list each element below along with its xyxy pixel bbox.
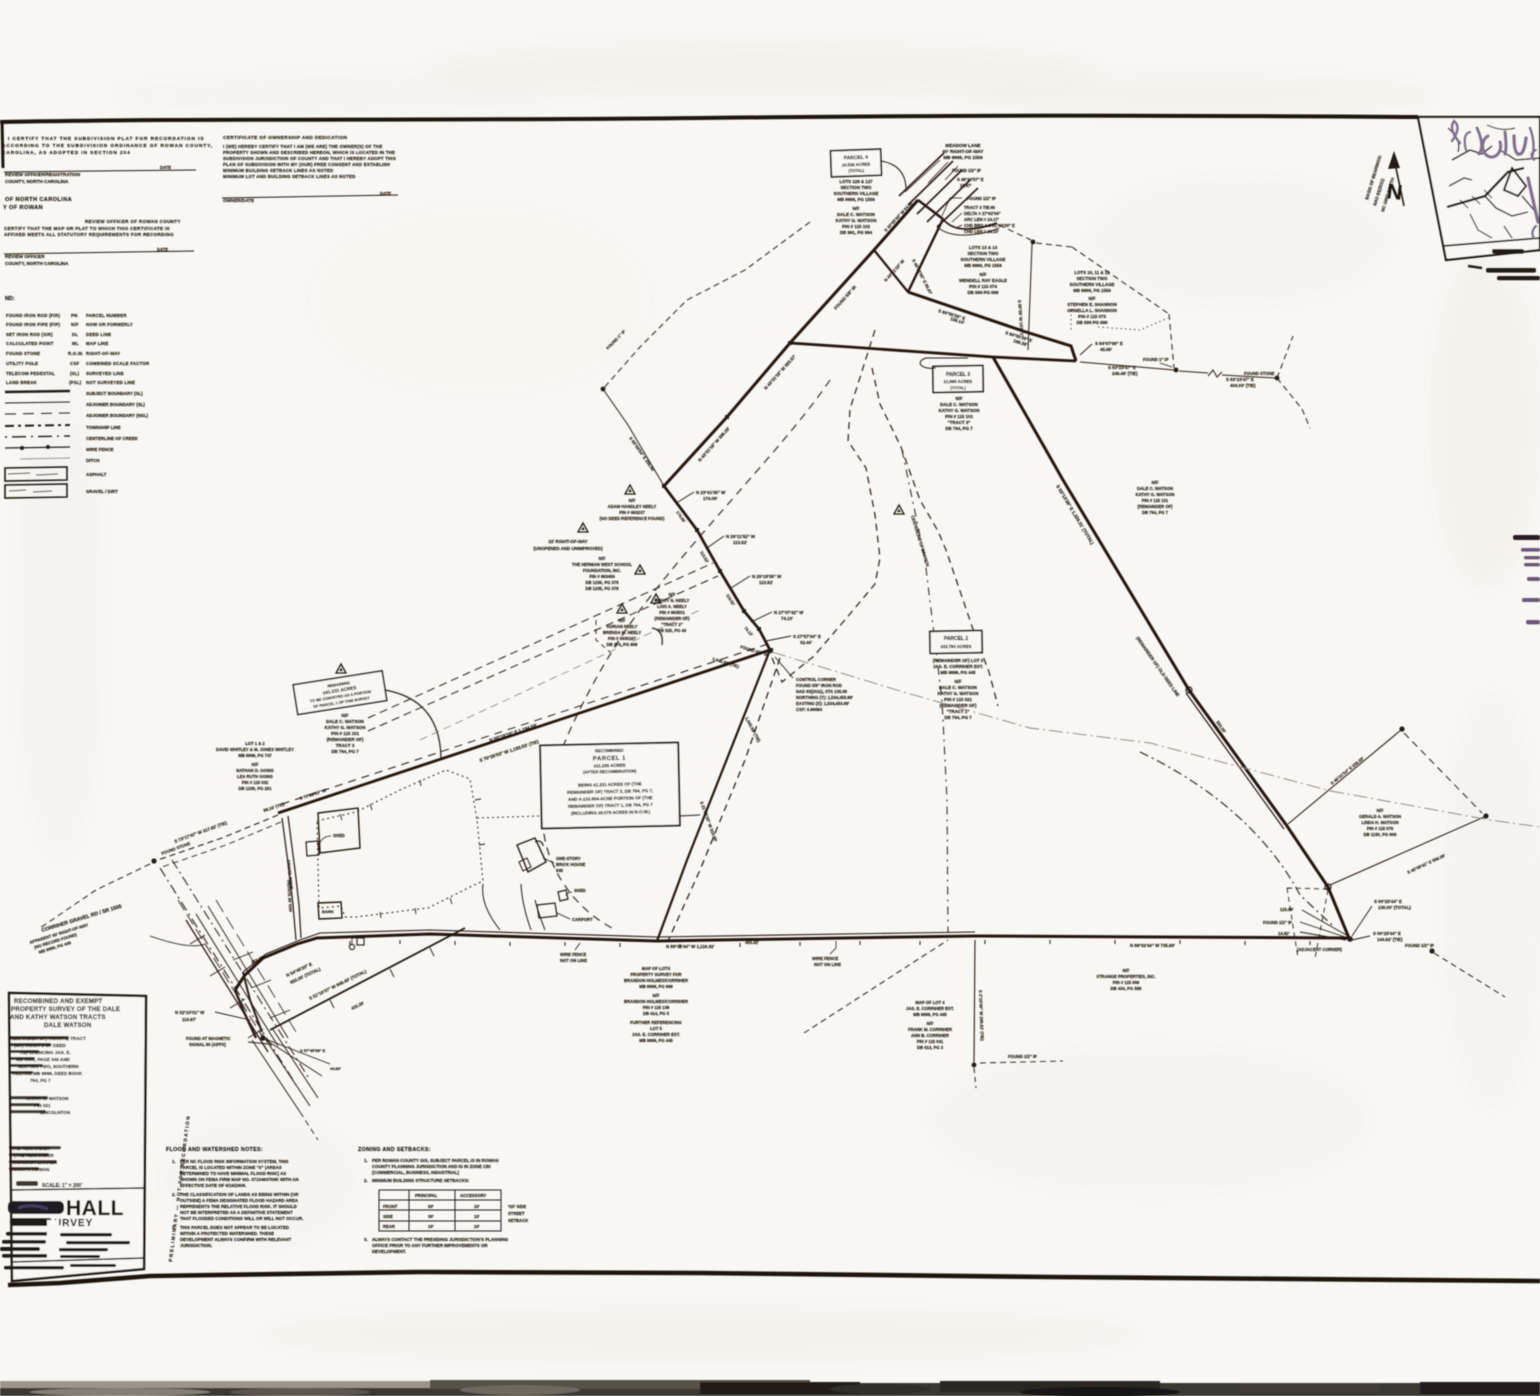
svg-text:N: N: [1386, 180, 1404, 205]
svg-text:FRONT: FRONT: [383, 1204, 398, 1209]
svg-text:LOTS 126 & 127: LOTS 126 & 127: [839, 179, 873, 184]
svg-text:LOTS 10, 11 & 12: LOTS 10, 11 & 12: [1074, 270, 1110, 275]
svg-text:LINDA H. WATSON: LINDA H. WATSON: [1361, 820, 1398, 825]
svg-text:PIN # 663237: PIN # 663237: [619, 510, 645, 515]
svg-text:1.: 1.: [172, 1159, 176, 1164]
svg-text:LAND BREAK: LAND BREAK: [6, 380, 38, 385]
svg-text:SOUTHERN VILLAGE: SOUTHERN VILLAGE: [834, 191, 879, 196]
svg-text:ADJOINER BOUNDARY (SL): ADJOINER BOUNDARY (SL): [86, 402, 145, 407]
svg-text:ACCESSORY: ACCESSORY: [460, 1193, 487, 1198]
svg-text:PIN # 115 074: PIN # 115 074: [969, 284, 997, 289]
svg-text:32.44': 32.44': [800, 640, 812, 645]
svg-text:WENDELL RAY EAGLE: WENDELL RAY EAGLE: [959, 278, 1007, 283]
svg-text:KATHY G. WATSON: KATHY G. WATSON: [1136, 492, 1175, 497]
svg-text:ONE-STORY: ONE-STORY: [556, 856, 581, 861]
svg-text:CENTERLINE OF CREEK: CENTERLINE OF CREEK: [86, 436, 139, 441]
svg-text:FRANK M. CORRIHER: FRANK M. CORRIHER: [908, 1027, 952, 1032]
svg-text:2.: 2.: [172, 1192, 176, 1197]
svg-text:PIN # 115 021: PIN # 115 021: [944, 697, 972, 702]
svg-text:SOUTHERN VILLAGE: SOUTHERN VILLAGE: [1070, 282, 1115, 287]
svg-text:DALE C. WATSON: DALE C. WATSON: [326, 719, 364, 724]
svg-text:PARCEL 4: PARCEL 4: [844, 155, 869, 162]
svg-text:PARCEL 1: PARCEL 1: [593, 756, 626, 763]
svg-text:COUNTY, NORTH CAROLINA: COUNTY, NORTH CAROLINA: [5, 261, 69, 266]
svg-text:249.46' (TIE): 249.46' (TIE): [1112, 371, 1138, 376]
svg-text:PIN # 115 138: PIN # 115 138: [643, 1005, 670, 1010]
svg-text:ADRIAN NEELY: ADRIAN NEELY: [606, 624, 637, 629]
svg-text:ARC LEN = 24.17': ARC LEN = 24.17': [964, 217, 999, 222]
svg-text:3.: 3.: [172, 1225, 176, 1230]
svg-text:(NO DEED REFERENCE FOUND): (NO DEED REFERENCE FOUND): [600, 516, 666, 521]
svg-text:PLAN OF SUBDIVISION WITH MY (O: PLAN OF SUBDIVISION WITH MY (OUR) FREE C…: [223, 162, 390, 167]
svg-text:SUBJECT BOUNDARY (SL): SUBJECT BOUNDARY (SL): [86, 391, 143, 396]
svg-text:WIRE FENCE: WIRE FENCE: [560, 952, 586, 957]
svg-text:"TRACT 3": "TRACT 3": [948, 420, 971, 425]
svg-text:CONTROL CORNER: CONTROL CORNER: [796, 677, 836, 682]
svg-text:N/F: N/F: [1123, 968, 1130, 973]
svg-text:COMBINED SCALE FACTOR: COMBINED SCALE FACTOR: [86, 361, 150, 366]
svg-text:LEA RUTH GOINS: LEA RUTH GOINS: [237, 774, 273, 779]
svg-text:SECTION TWO: SECTION TWO: [841, 185, 873, 190]
svg-text:STREET: STREET: [508, 1211, 525, 1216]
svg-text:EASTING (X): 1,534,453.98': EASTING (X): 1,534,453.98': [796, 701, 849, 706]
svg-text:SIDE: SIDE: [383, 1214, 393, 1219]
svg-text:45.69': 45.69': [1100, 347, 1112, 352]
svg-text:RECOMBINED: RECOMBINED: [595, 748, 624, 754]
svg-text:COUNTY, NORTH CAROLINA: COUNTY, NORTH CAROLINA: [5, 179, 69, 184]
svg-text:N/F: N/F: [927, 1021, 934, 1026]
svg-text:DAVID WHITLEY & M. JONES WHITL: DAVID WHITLEY & M. JONES WHITLEY: [216, 747, 294, 752]
svg-text:130.00' (TOTAL): 130.00' (TOTAL): [1378, 905, 1411, 910]
svg-text:SHOWN ON FEMA FIRM MAP NO. 371: SHOWN ON FEMA FIRM MAP NO. 3710463700K W…: [180, 1177, 299, 1182]
svg-text:DB 1236, PG 291: DB 1236, PG 291: [238, 786, 272, 791]
svg-text:NOT SURVEYED LINE: NOT SURVEYED LINE: [86, 380, 135, 385]
svg-text:ACCORDING TO THE SUBDIVISION O: ACCORDING TO THE SUBDIVISION ORDINANCE O…: [2, 143, 213, 149]
svg-text:14.82': 14.82': [1278, 931, 1289, 936]
svg-text:N/F: N/F: [653, 993, 660, 998]
svg-text:DB 413, PG 3: DB 413, PG 3: [917, 1045, 944, 1050]
svg-text:(SL): (SL): [70, 371, 80, 376]
svg-text:CSF: 0.99984: CSF: 0.99984: [796, 707, 823, 712]
svg-text:KATHY G. WATSON: KATHY G. WATSON: [325, 725, 366, 730]
svg-text:ML: ML: [72, 341, 79, 346]
svg-text:(REMAINDER OF): (REMAINDER OF): [940, 703, 977, 708]
svg-text:JAS. E. CORRIHER EST.: JAS. E. CORRIHER EST.: [906, 1006, 954, 1011]
svg-text:REVIEW OFFICER OF ROWAN COUNTY: REVIEW OFFICER OF ROWAN COUNTY: [85, 219, 181, 224]
svg-text:3.: 3.: [364, 1237, 368, 1242]
svg-text:MINIMUM LOT AND BUILDING SETBA: MINIMUM LOT AND BUILDING SETBACK LINES A…: [223, 174, 356, 179]
svg-text:404.03' (TIE): 404.03' (TIE): [1230, 383, 1256, 388]
svg-text:FOUND 1/2" IP: FOUND 1/2" IP: [1008, 1054, 1037, 1059]
svg-text:FLOOD AND WATERSHED NOTES:: FLOOD AND WATERSHED NOTES:: [166, 1147, 263, 1153]
svg-text:113.52': 113.52': [759, 580, 773, 585]
svg-text:PARCEL 3: PARCEL 3: [946, 372, 970, 378]
svg-text:FOUND 1/2" IP: FOUND 1/2" IP: [967, 196, 996, 201]
svg-text:FOUND AT MAGNETIC: FOUND AT MAGNETIC: [186, 1036, 231, 1041]
svg-text:S 27°57'34" E: S 27°57'34" E: [793, 634, 821, 639]
svg-text:S 63°23'47" E: S 63°23'47" E: [1108, 365, 1136, 370]
svg-text:AND KATHY WATSON TRACTS: AND KATHY WATSON TRACTS: [10, 1014, 106, 1021]
svg-text:SHED: SHED: [333, 833, 345, 838]
svg-text:URVEY: URVEY: [54, 1218, 93, 1229]
svg-text:CAROLINA, AS ADOPTED IN SECTIO: CAROLINA, AS ADOPTED IN SECTION 204: [2, 150, 131, 156]
svg-text:ADJOINER BOUNDARY (NSL): ADJOINER BOUNDARY (NSL): [86, 413, 148, 418]
svg-text:PROPERTY SHOWN AND DESCRIBED H: PROPERTY SHOWN AND DESCRIBED HEREON, WHI…: [223, 150, 395, 155]
svg-text:DEVELOPMENT ALWAYS CONFIRM WIT: DEVELOPMENT ALWAYS CONFIRM WITH RELEVANT: [180, 1237, 292, 1242]
svg-text:N 89°32'44" W 1,116.32': N 89°32'44" W 1,116.32': [666, 944, 714, 949]
svg-text:JAS. E. CORRIHER EST.: JAS. E. CORRIHER EST.: [632, 1032, 680, 1037]
svg-text:N/F: N/F: [341, 713, 348, 718]
svg-text:PIN # 115 073: PIN # 115 073: [1078, 314, 1106, 319]
svg-text:DB 1235, PG 378: DB 1235, PG 378: [585, 586, 619, 591]
svg-text:ADAM HANDLEY NEELY: ADAM HANDLEY NEELY: [608, 504, 657, 509]
svg-text:ND:: ND:: [5, 296, 15, 302]
svg-text:FOUND 1" IP: FOUND 1" IP: [1143, 357, 1169, 362]
svg-text:MB 9999, PG 1556: MB 9999, PG 1556: [964, 263, 1002, 268]
svg-text:BRANDON HOLMES/CORRIHER: BRANDON HOLMES/CORRIHER: [624, 978, 688, 983]
svg-text:REVIEW OFFICER/REGISTRATION: REVIEW OFFICER/REGISTRATION: [5, 172, 81, 177]
svg-text:MB 9999, PG 999: MB 9999, PG 999: [639, 984, 673, 989]
svg-text:DATE: DATE: [160, 165, 171, 170]
svg-text:N 89°32'44" W 735.99': N 89°32'44" W 735.99': [1130, 943, 1175, 948]
svg-text:N/F: N/F: [629, 498, 636, 503]
svg-text:STEPHEN E. SHANNON: STEPHEN E. SHANNON: [1067, 302, 1117, 307]
svg-text:DALE WATSON: DALE WATSON: [44, 1022, 92, 1029]
svg-text:LOTS 13 & 14: LOTS 13 & 14: [969, 245, 998, 250]
svg-text:N/F: N/F: [954, 679, 961, 684]
svg-text:SETBACK: SETBACK: [508, 1218, 528, 1223]
svg-text:PIN # 6635167: PIN # 6635167: [608, 636, 637, 641]
svg-text:HALL: HALL: [66, 1197, 124, 1220]
svg-text:453.42': 453.42': [745, 940, 759, 945]
svg-text:16.67': 16.67': [960, 183, 971, 188]
svg-text:PIN # 115 101: PIN # 115 101: [1142, 498, 1169, 503]
svg-text:22' RIGHT-OF-WAY: 22' RIGHT-OF-WAY: [548, 539, 587, 544]
svg-text:PIN # 663501: PIN # 663501: [659, 610, 685, 615]
svg-text:SIGNAL 60 (APPX): SIGNAL 60 (APPX): [189, 1042, 227, 1047]
svg-text:LOIS A. NEELY: LOIS A. NEELY: [657, 604, 687, 609]
svg-text:WIRE FENCE: WIRE FENCE: [86, 447, 114, 452]
svg-text:SHED: SHED: [574, 888, 586, 893]
svg-text:JURISDICTION.: JURISDICTION.: [180, 1243, 212, 1248]
svg-text:THE HERMAN WEST SCHOOL: THE HERMAN WEST SCHOOL: [572, 562, 633, 567]
svg-text:N/F: N/F: [852, 206, 859, 211]
svg-text:NOT ON LINE: NOT ON LINE: [814, 962, 841, 967]
svg-text:113.52': 113.52': [733, 540, 747, 545]
svg-text:RIGHT-OF-WAY: RIGHT-OF-WAY: [86, 351, 120, 356]
svg-text:DATE: DATE: [157, 247, 168, 252]
svg-text:174.06': 174.06': [703, 496, 717, 501]
svg-text:PER NC FLOOD RISK INFORMATION: PER NC FLOOD RISK INFORMATION SYSTEM, TH…: [180, 1159, 289, 1164]
svg-text:MB 9999, PG 445: MB 9999, PG 445: [913, 1012, 947, 1017]
svg-text:MAP OF LOTS: MAP OF LOTS: [642, 966, 671, 971]
svg-text:(TOTAL): (TOTAL): [950, 385, 966, 390]
svg-text:OWNER/DATE: OWNER/DATE: [223, 198, 254, 203]
svg-text:NOW OR FORMERLY: NOW OR FORMERLY: [86, 322, 133, 327]
svg-text:CHD BRG = S 81°04'30" E: CHD BRG = S 81°04'30" E: [964, 223, 1015, 228]
svg-text:FOUND IRON ROD (FIR): FOUND IRON ROD (FIR): [6, 313, 60, 318]
svg-text:115.09': 115.09': [1280, 907, 1294, 912]
svg-text:OFFICE PRIOR TO ANY FURTHER IM: OFFICE PRIOR TO ANY FURTHER IMPROVEMENTS…: [372, 1243, 488, 1248]
svg-text:NAD 83(2011), STA 135.08: NAD 83(2011), STA 135.08: [796, 689, 848, 694]
svg-text:"TRACT 1": "TRACT 1": [947, 709, 970, 714]
svg-text:"TRACT 2": "TRACT 2": [661, 622, 683, 627]
svg-text:GRAVEL / DIRT: GRAVEL / DIRT: [86, 489, 118, 494]
svg-text:FOUND 5/8" IRON ROD: FOUND 5/8" IRON ROD: [796, 683, 842, 688]
svg-text:Y OF ROWAN: Y OF ROWAN: [3, 205, 43, 211]
svg-text:110.67': 110.67': [182, 1017, 196, 1022]
svg-text:THE CLASSIFICATION OF LANDS AS: THE CLASSIFICATION OF LANDS AS BEING WIT…: [180, 1192, 299, 1197]
svg-text:TRACT 3: TRACT 3: [336, 743, 355, 748]
svg-text:S 84°07'09" E: S 84°07'09" E: [1095, 341, 1123, 346]
svg-text:DITCH: DITCH: [86, 458, 99, 463]
svg-text:FURTHER REFERENCING: FURTHER REFERENCING: [630, 1020, 682, 1025]
svg-text:R.O.W.: R.O.W.: [68, 351, 83, 356]
svg-text:PARCEL IS LOCATED WITHIN ZONE: PARCEL IS LOCATED WITHIN ZONE "X" (AREAS: [180, 1165, 282, 1170]
svg-text:CSF: CSF: [70, 361, 79, 366]
svg-text:KATHY G. WATSON: KATHY G. WATSON: [938, 691, 979, 696]
svg-text:MB 9999, PG 1556: MB 9999, PG 1556: [837, 197, 875, 202]
svg-text:±11.235 ACRES: ±11.235 ACRES: [594, 763, 626, 769]
svg-text:DETERMINED TO HAVE MINIMAL FLO: DETERMINED TO HAVE MINIMAL FLOOD RISK) A…: [180, 1171, 286, 1176]
svg-text:CERTIFY THAT THE MAP OR PLAT T: CERTIFY THAT THE MAP OR PLAT TO WHICH TH…: [4, 226, 170, 231]
svg-text:PIN # 115 076: PIN # 115 076: [1367, 826, 1394, 831]
svg-text:KATHY G. WATSON: KATHY G. WATSON: [836, 218, 877, 223]
svg-text:EFFECTIVE DATE OF 6/16/2008.: EFFECTIVE DATE OF 6/16/2008.: [180, 1183, 246, 1188]
svg-text:JAS. E. CORRIHER EST.: JAS. E. CORRIHER EST.: [933, 664, 983, 669]
svg-text:ZONING AND SETBACKS:: ZONING AND SETBACKS:: [358, 1147, 431, 1153]
svg-text:DALE C. WATSON: DALE C. WATSON: [1137, 486, 1173, 491]
svg-text:N/F: N/F: [955, 396, 962, 401]
svg-text:FOUND STONE: FOUND STONE: [6, 351, 40, 356]
svg-text:S 63°23'47" E: S 63°23'47" E: [1226, 377, 1254, 382]
svg-text:N 26°11'52" W: N 26°11'52" W: [726, 534, 756, 539]
svg-text:NORTHING (Y): 1,534,453.96': NORTHING (Y): 1,534,453.96': [796, 695, 853, 700]
svg-text:DB 434, PG 588: DB 434, PG 588: [1111, 986, 1142, 991]
svg-text:PN: PN: [71, 313, 78, 318]
svg-text:DB 764, PG 7: DB 764, PG 7: [944, 715, 972, 720]
svg-text:MB 9999, PG 445: MB 9999, PG 445: [639, 1038, 673, 1043]
svg-text:FOUNDATION, INC.: FOUNDATION, INC.: [583, 568, 621, 573]
svg-text:SET IRON ROD (SIR): SET IRON ROD (SIR): [6, 332, 53, 337]
svg-text:±32.794 ACRES: ±32.794 ACRES: [941, 644, 972, 649]
svg-text:PIN # 115 041: PIN # 115 041: [917, 1039, 944, 1044]
svg-text:CALCULATED POINT: CALCULATED POINT: [6, 341, 54, 346]
svg-text:50': 50': [428, 1204, 434, 1209]
svg-text:PIN # 115 101: PIN # 115 101: [331, 731, 359, 736]
svg-text:N/F: N/F: [71, 322, 79, 327]
svg-text:DB 764, PG 7: DB 764, PG 7: [945, 426, 973, 431]
svg-text:MAP OF LOT 4: MAP OF LOT 4: [915, 1000, 945, 1005]
svg-text:N 23°41'35" W: N 23°41'35" W: [696, 490, 726, 495]
svg-text:935: 935: [556, 868, 564, 873]
svg-text:44.89': 44.89': [330, 1066, 341, 1071]
svg-text:S 48°20'57" E: S 48°20'57" E: [957, 177, 984, 182]
svg-text:FOUND 1/2" IP: FOUND 1/2" IP: [1405, 943, 1434, 948]
svg-text:PIN # 115 032: PIN # 115 032: [242, 780, 269, 785]
svg-text:HENRY N. NEELY: HENRY N. NEELY: [655, 598, 690, 603]
svg-text:GERALD A. WATSON: GERALD A. WATSON: [1359, 814, 1401, 819]
svg-text:N/F: N/F: [1377, 808, 1384, 813]
svg-text:REAR: REAR: [383, 1224, 395, 1229]
svg-text:N/F: N/F: [1088, 296, 1095, 301]
svg-text:TELECOM PEDESTAL: TELECOM PEDESTAL: [6, 371, 55, 376]
svg-text:PER ROWAN COUNTY GIS, SUBJECT: PER ROWAN COUNTY GIS, SUBJECT PARCEL IS …: [372, 1158, 498, 1163]
svg-text:UTILITY POLE: UTILITY POLE: [6, 361, 38, 366]
svg-text:(ADJACENT CORNER): (ADJACENT CORNER): [1297, 947, 1343, 952]
svg-text:OUTSIDE) A FEMA DESIGNATED FLO: OUTSIDE) A FEMA DESIGNATED FLOOD HAZARD …: [180, 1198, 299, 1203]
svg-text:SOUTHERN VILLAGE: SOUTHERN VILLAGE: [961, 257, 1006, 262]
svg-text:COUNTY PLANNING JURISDICTION A: COUNTY PLANNING JURISDICTION AND IS IN Z…: [372, 1164, 491, 1169]
svg-text:PROPERTY SURVEY OF THE DALE: PROPERTY SURVEY OF THE DALE: [11, 1006, 120, 1013]
svg-text:FOUND 1/2" IP: FOUND 1/2" IP: [1263, 920, 1292, 925]
svg-text:PROPERTY SURVEY FOR: PROPERTY SURVEY FOR: [630, 972, 681, 977]
svg-text:MB 9999, PG 747: MB 9999, PG 747: [238, 753, 272, 758]
svg-text:DEVELOPMENT.: DEVELOPMENT.: [372, 1249, 406, 1254]
svg-text:DEED LINE: DEED LINE: [86, 332, 111, 337]
svg-text:DL: DL: [72, 332, 78, 337]
svg-text:I (WE) HEREBY CERTIFY THAT I A: I (WE) HEREBY CERTIFY THAT I AM (WE ARE)…: [223, 144, 383, 149]
svg-text:MAP LINE: MAP LINE: [86, 341, 109, 346]
svg-text:N 25°18'35" W: N 25°18'35" W: [752, 574, 782, 579]
svg-text:±1.899 ACRES: ±1.899 ACRES: [944, 379, 973, 384]
svg-text:THAT FLOODED CONDITIONS WILL O: THAT FLOODED CONDITIONS WILL OR WILL NOT…: [180, 1216, 303, 1221]
svg-text:N/F: N/F: [252, 762, 259, 767]
svg-text:N 27°37'42" W: N 27°37'42" W: [774, 610, 804, 615]
svg-text:MB 9999, PG 1556: MB 9999, PG 1556: [943, 155, 983, 160]
svg-text:SUBDIVISION JURISDICTION OF CO: SUBDIVISION JURISDICTION OF COUNTY AND T…: [223, 156, 396, 161]
svg-text:(UNOPENED AND UNIMPROVED): (UNOPENED AND UNIMPROVED): [533, 546, 603, 551]
svg-text:N/F: N/F: [979, 272, 986, 277]
svg-text:DELTA = 17°02'04": DELTA = 17°02'04": [964, 211, 1001, 216]
svg-text:DB 991, PG 994: DB 991, PG 994: [840, 230, 873, 235]
svg-text:LOT 5: LOT 5: [650, 1026, 663, 1031]
svg-text:MEADOW LANE: MEADOW LANE: [945, 143, 980, 148]
svg-text:10': 10': [474, 1214, 480, 1219]
svg-text:SURVEYED LINE: SURVEYED LINE: [86, 371, 124, 376]
svg-text:S 00°20'44" E: S 00°20'44" E: [1373, 931, 1401, 936]
svg-text:(REMAINDER OF): (REMAINDER OF): [1137, 504, 1173, 509]
svg-text:DALE C. WATSON: DALE C. WATSON: [837, 212, 875, 217]
svg-text:±0.536 ACRES: ±0.536 ACRES: [842, 161, 871, 167]
svg-text:PIN # 115 066: PIN # 115 066: [1113, 980, 1140, 985]
svg-text:BRICK HOUSE: BRICK HOUSE: [556, 862, 586, 867]
svg-text:REPRESENTS THE RELATIVE FLOOD: REPRESENTS THE RELATIVE FLOOD RISK. IT S…: [180, 1204, 297, 1209]
svg-text:PARCEL 2: PARCEL 2: [944, 636, 968, 642]
svg-text:CERTIFICATE OF OWNERSHIP AND D: CERTIFICATE OF OWNERSHIP AND DEDICATION: [223, 135, 347, 141]
svg-text:THIS PARCEL DOES NOT APPEAR TO: THIS PARCEL DOES NOT APPEAR TO BE LOCATE…: [180, 1225, 289, 1230]
svg-text:DB 374, PG 808: DB 374, PG 808: [607, 642, 638, 647]
svg-text:CARPORT: CARPORT: [572, 917, 593, 922]
svg-text:30': 30': [428, 1214, 434, 1219]
svg-text:PIN # 663456: PIN # 663456: [589, 574, 615, 579]
svg-text:LOT 1 & 2: LOT 1 & 2: [245, 741, 265, 746]
svg-text:PIN # 115 101: PIN # 115 101: [945, 414, 973, 419]
svg-text:NATHAN D. GOINS: NATHAN D. GOINS: [236, 768, 274, 773]
svg-text:SECTION TWO: SECTION TWO: [968, 251, 1000, 256]
svg-text:144.92' (TIE): 144.92' (TIE): [1377, 937, 1403, 942]
svg-text:OF NORTH CAROLINA: OF NORTH CAROLINA: [5, 197, 72, 203]
svg-text:10': 10': [474, 1224, 480, 1229]
svg-text:KATHY G. WATSON: KATHY G. WATSON: [939, 408, 980, 413]
svg-text:WITHIN A PROTECTED WATERSHED.: WITHIN A PROTECTED WATERSHED. THESE: [180, 1231, 274, 1236]
svg-text:74.13': 74.13': [781, 616, 793, 621]
svg-text:N 32°10'01" W: N 32°10'01" W: [175, 1010, 205, 1015]
svg-text:DB 1235, PG 375: DB 1235, PG 375: [585, 580, 619, 585]
svg-text:(PSL): (PSL): [69, 380, 82, 385]
svg-text:DB 325, PG 40: DB 325, PG 40: [658, 628, 687, 633]
svg-text:(COMMERCIAL, BUSINESS, INDUSTR: (COMMERCIAL, BUSINESS, INDUSTRIAL): [372, 1170, 460, 1175]
svg-text:(REMAINDER OF) LOT 3: (REMAINDER OF) LOT 3: [933, 658, 984, 663]
svg-text:(REMAINDER OF): (REMAINDER OF): [654, 616, 690, 621]
svg-text:PRINCIPAL: PRINCIPAL: [415, 1193, 438, 1198]
svg-text:DB 1150, PG 909: DB 1150, PG 909: [1364, 832, 1397, 837]
svg-text:S 00°20'44" E: S 00°20'44" E: [1374, 899, 1402, 904]
svg-text:NOT ON LINE: NOT ON LINE: [560, 958, 587, 963]
svg-text:FOUND STONE: FOUND STONE: [1244, 371, 1275, 376]
svg-text:STRANGE PROPERTIES, INC.: STRANGE PROPERTIES, INC.: [1096, 974, 1155, 979]
svg-text:1.: 1.: [364, 1158, 368, 1163]
svg-text:FOUND 1/2" IP: FOUND 1/2" IP: [952, 168, 981, 173]
svg-text:ASPHALT: ASPHALT: [86, 472, 107, 477]
svg-text:MINIMUM BUILDING STRUCTURE SET: MINIMUM BUILDING STRUCTURE SETBACKS:: [372, 1178, 470, 1183]
svg-text:SECTION TWO: SECTION TWO: [1077, 276, 1109, 281]
svg-text:ALWAYS CONTACT THE PRESIDING J: ALWAYS CONTACT THE PRESIDING JURISDICTIO…: [372, 1237, 509, 1242]
svg-text:NOT BE INTERPRETED AS A DEFINI: NOT BE INTERPRETED AS A DEFINITIVE STATE…: [180, 1210, 293, 1215]
svg-text:(TOTAL): (TOTAL): [848, 168, 864, 174]
svg-text:S 57°45'58" E: S 57°45'58" E: [300, 1048, 326, 1053]
svg-text:BARN: BARN: [322, 909, 334, 914]
svg-text:MB 9999, PG 1556: MB 9999, PG 1556: [1073, 288, 1111, 293]
svg-text:REVIEW OFFICER: REVIEW OFFICER: [5, 254, 45, 259]
svg-text:10': 10': [428, 1224, 434, 1229]
svg-text:TOWNSHIP LINE: TOWNSHIP LINE: [86, 425, 121, 430]
svg-text:CHD LEN = 24.10': CHD LEN = 24.10': [964, 229, 999, 234]
svg-text:DB 999 PG 999: DB 999 PG 999: [968, 290, 1000, 295]
svg-text:BRANDON HOLMES/CORRIHER: BRANDON HOLMES/CORRIHER: [624, 999, 688, 1004]
svg-text:WIRE FENCE: WIRE FENCE: [812, 956, 838, 961]
svg-text:MB 9999, PG 445: MB 9999, PG 445: [940, 670, 976, 675]
svg-text:FOUND IRON PIPE (FIP): FOUND IRON PIPE (FIP): [6, 322, 61, 327]
svg-text:I CERTIFY THAT THE SUBDIVISION: I CERTIFY THAT THE SUBDIVISION PLAT FOR …: [8, 136, 204, 142]
svg-text:DALE C. WATSON: DALE C. WATSON: [940, 402, 978, 407]
svg-text:N/F: N/F: [619, 618, 626, 623]
svg-text:DB 414, PG 5: DB 414, PG 5: [643, 1011, 670, 1016]
svg-text:DB 764, PG 7: DB 764, PG 7: [1142, 510, 1169, 515]
svg-text:2.: 2.: [364, 1178, 368, 1183]
svg-text:PARCEL NUMBER: PARCEL NUMBER: [86, 313, 127, 318]
svg-text:MINIMUM BUILDING SETBACK LINES: MINIMUM BUILDING SETBACK LINES AS NOTED: [223, 168, 333, 173]
svg-text:PIN # 115 102: PIN # 115 102: [842, 224, 870, 229]
svg-text:RECOMBINED AND EXEMPT: RECOMBINED AND EXEMPT: [14, 998, 103, 1005]
svg-text:N/F: N/F: [599, 556, 606, 561]
svg-text:BRENDA M. NEELY: BRENDA M. NEELY: [603, 630, 642, 635]
svg-text:*20' SIDE: *20' SIDE: [508, 1204, 526, 1209]
svg-text:N/F: N/F: [669, 592, 676, 597]
svg-text:10': 10': [474, 1204, 480, 1209]
svg-text:DB 764, PG 7: DB 764, PG 7: [331, 749, 359, 754]
svg-text:764, PG 7: 764, PG 7: [30, 1078, 51, 1083]
svg-text:60' RIGHT-OF-WAY: 60' RIGHT-OF-WAY: [943, 149, 984, 154]
svg-text:TRACT 4 TIE-IN: TRACT 4 TIE-IN: [964, 205, 995, 210]
svg-text:AFFIXED MEETS ALL STATUTORY RE: AFFIXED MEETS ALL STATUTORY REQUIREMENTS…: [4, 232, 174, 237]
svg-text:(REMAINDER OF): (REMAINDER OF): [327, 737, 364, 742]
svg-text:ANN B. CORRIHER: ANN B. CORRIHER: [911, 1033, 949, 1038]
svg-text:N/F: N/F: [1152, 480, 1159, 485]
svg-text:DATE: DATE: [380, 191, 391, 196]
svg-text:ORNELLA L. SHANNON: ORNELLA L. SHANNON: [1067, 308, 1117, 313]
svg-text:SCALE: 1" = 200': SCALE: 1" = 200': [42, 1183, 82, 1189]
